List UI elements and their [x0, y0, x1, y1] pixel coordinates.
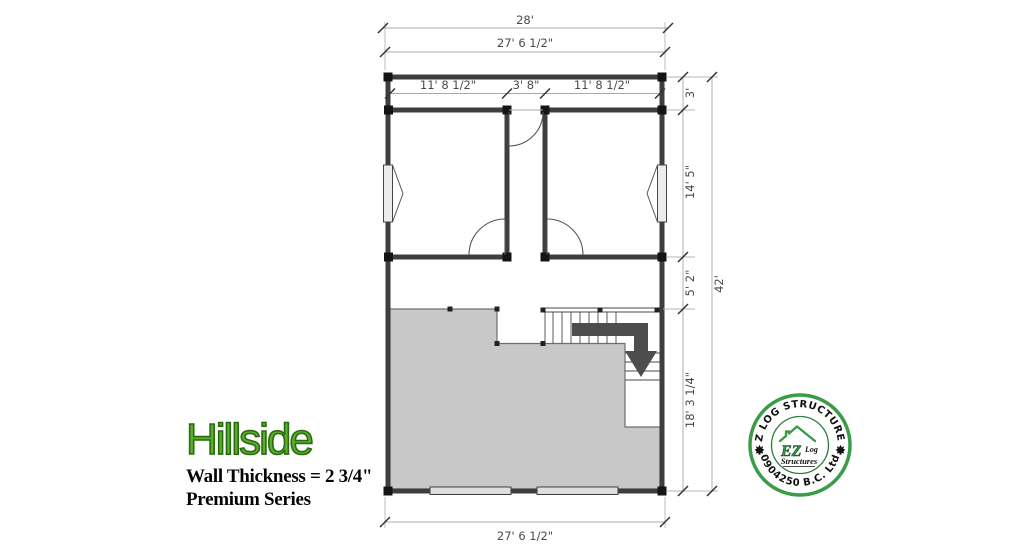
hall-door-swing-icon: [509, 110, 543, 146]
left-room-door-swing-icon: [469, 219, 505, 255]
window-icon: [537, 487, 618, 495]
dim-label: 11' 8 1/2": [574, 78, 630, 92]
right-room-door-swing-icon: [547, 219, 583, 255]
wall-thickness-note: Wall Thickness = 2 3/4": [186, 465, 372, 488]
floor-plan-drawing: 28' 27' 6 1/2" 11' 8 1/2" 3' 8" 11' 8 1/…: [0, 0, 1024, 554]
dimension-right-segments: 3' 14' 5" 5' 2" 18' 3 1/4": [663, 72, 718, 496]
dimension-wall-width-top: 27' 6 1/2": [380, 36, 670, 57]
dim-label: 5' 2": [683, 270, 697, 297]
interior-walls: [385, 108, 665, 257]
dim-label: 27' 6 1/2": [497, 529, 553, 543]
window-icon: [430, 487, 511, 495]
dim-label: 27' 6 1/2": [497, 36, 553, 50]
dim-label: 14' 5": [683, 165, 697, 199]
dim-label: 18' 3 1/4": [683, 372, 697, 428]
stamp-structures-text: Structures: [781, 456, 818, 466]
dimension-wall-width-bottom: 27' 6 1/2": [380, 497, 670, 543]
dimension-overall-depth: 42': [707, 72, 726, 496]
dim-label: 28': [516, 13, 534, 27]
floor-plan-sheet: 28' 27' 6 1/2" 11' 8 1/2" 3' 8" 11' 8 1/…: [0, 0, 1024, 554]
dim-label: 3': [683, 88, 697, 98]
dim-label: 42': [712, 275, 726, 293]
dimension-rooms-widths: 11' 8 1/2" 3' 8" 11' 8 1/2": [385, 78, 665, 99]
series-note: Premium Series: [186, 488, 372, 511]
dim-label: 11' 8 1/2": [420, 78, 476, 92]
left-wall-window-icon: [384, 165, 404, 222]
stamp-log-text: Log: [804, 445, 818, 454]
title-block: Hillside Wall Thickness = 2 3/4" Premium…: [186, 418, 372, 511]
dim-label: 3' 8": [513, 78, 540, 92]
model-name: Hillside: [186, 418, 372, 462]
right-wall-window-icon: [647, 165, 667, 222]
